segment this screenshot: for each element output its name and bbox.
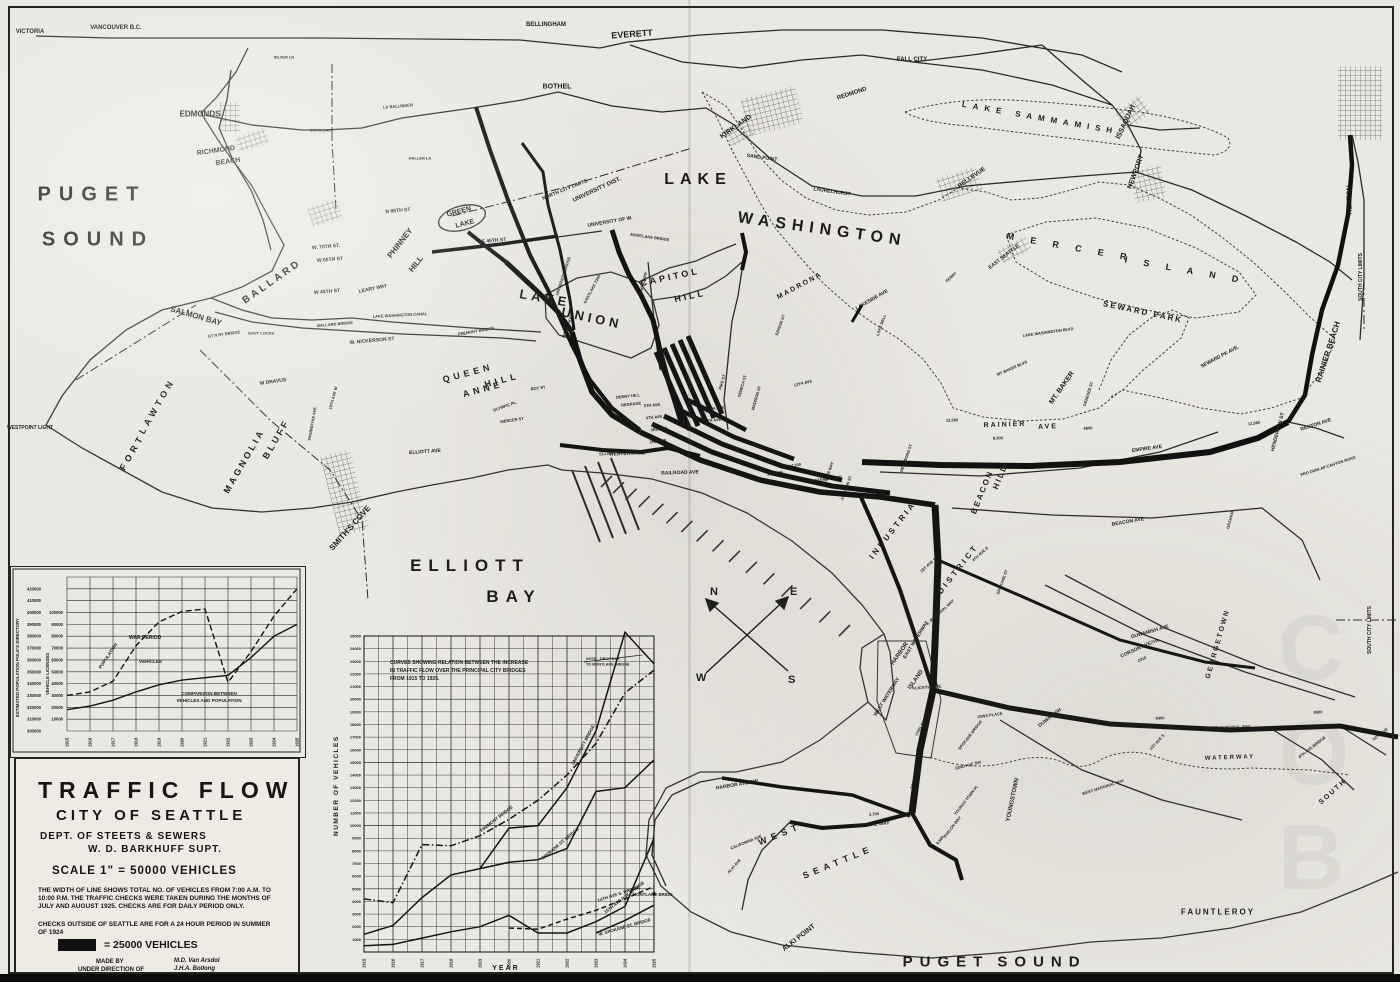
svg-text:1922: 1922 <box>565 958 570 968</box>
svg-text:10000: 10000 <box>350 823 362 828</box>
svg-text:5000: 5000 <box>352 886 362 891</box>
svg-text:1923: 1923 <box>594 958 599 968</box>
svg-text:320000: 320000 <box>27 705 42 710</box>
dept-line: DEPT. OF STEETS & SEWERS <box>40 831 207 842</box>
svg-text:80000: 80000 <box>51 634 63 639</box>
svg-text:1925: 1925 <box>295 737 300 747</box>
compass-rose: N E W S <box>692 585 802 685</box>
legend-value: = 25000 VEHICLES <box>104 939 198 951</box>
svg-text:12000: 12000 <box>350 798 362 803</box>
svg-text:20000: 20000 <box>350 697 362 702</box>
svg-text:1916: 1916 <box>88 737 93 747</box>
made-by-name: M.D. Van Arsdol <box>174 958 220 964</box>
supt-line: W. D. BARKHUFF SUPT. <box>88 844 222 855</box>
svg-text:SPOKANE ST. BRIDGE: SPOKANE ST. BRIDGE <box>540 826 580 860</box>
svg-text:ESTIMATED POPULATION POLK'S D: ESTIMATED POPULATION POLK'S DIRECTORY <box>15 618 20 717</box>
svg-text:2000: 2000 <box>352 924 362 929</box>
svg-text:15000: 15000 <box>350 760 362 765</box>
svg-text:1924: 1924 <box>623 958 628 968</box>
svg-text:1915: 1915 <box>362 958 367 968</box>
scan-edge <box>0 974 1400 982</box>
svg-text:1000: 1000 <box>352 937 362 942</box>
svg-text:1919: 1919 <box>157 737 162 747</box>
compass-e: E <box>790 586 797 598</box>
svg-text:100000: 100000 <box>49 610 64 615</box>
svg-text:30000: 30000 <box>51 693 63 698</box>
smith-cove-piers <box>572 458 639 542</box>
emboss-letter: C <box>1278 596 1344 701</box>
svg-text:6000: 6000 <box>352 874 362 879</box>
compass-s: S <box>788 674 795 685</box>
svg-text:NOTE - DROP DUE: NOTE - DROP DUE <box>586 657 620 661</box>
svg-text:NUMBER OF VEHICLES: NUMBER OF VEHICLES <box>333 735 340 836</box>
svg-text:8000: 8000 <box>352 848 362 853</box>
svg-text:420000: 420000 <box>27 586 42 591</box>
svg-text:7000: 7000 <box>352 861 362 866</box>
map-subtitle: CITY OF SEATTLE <box>56 807 246 824</box>
svg-text:9000: 9000 <box>352 836 362 841</box>
svg-text:310000: 310000 <box>27 717 42 722</box>
svg-text:VEHICLE LICENSES: VEHICLE LICENSES <box>45 653 50 695</box>
svg-text:1917: 1917 <box>420 958 425 968</box>
svg-text:CURVES SHOWING RELATION BETWEE: CURVES SHOWING RELATION BETWEEN THE INCR… <box>390 660 529 666</box>
scale-line: SCALE 1" = 50000 VEHICLES <box>52 865 237 877</box>
svg-text:1915: 1915 <box>65 737 70 747</box>
svg-text:24000: 24000 <box>350 646 362 651</box>
svg-text:WAR PERIOD: WAR PERIOD <box>129 635 162 641</box>
director-name: J.H.A. Bollong <box>174 966 215 972</box>
svg-text:YEAR: YEAR <box>492 965 519 972</box>
svg-text:TO MONTLAKE BRIDGE: TO MONTLAKE BRIDGE <box>586 663 630 667</box>
svg-text:4000: 4000 <box>352 899 362 904</box>
svg-text:1917: 1917 <box>111 737 116 747</box>
outside-note: CHECKS OUTSIDE OF SEATTLE ARE FOR A 24 H… <box>38 921 278 937</box>
svg-text:UNIVERSITY BRIDGE: UNIVERSITY BRIDGE <box>570 724 595 766</box>
svg-text:11000: 11000 <box>350 810 362 815</box>
city-limit-lines <box>76 64 1398 620</box>
compass-n: N <box>710 586 718 598</box>
city-blocks-hatch <box>220 66 1382 536</box>
svg-text:17000: 17000 <box>350 735 362 740</box>
svg-text:410000: 410000 <box>27 598 42 603</box>
svg-text:21000: 21000 <box>350 684 362 689</box>
svg-text:1923: 1923 <box>249 737 254 747</box>
map-title: TRAFFIC FLOW <box>38 777 294 804</box>
svg-text:360000: 360000 <box>27 657 42 662</box>
map-page: N E W S COB VICTORIAVANCOUVER B.C.BELLIN… <box>0 0 1400 982</box>
svg-text:1921: 1921 <box>203 737 208 747</box>
svg-text:1916: 1916 <box>391 958 396 968</box>
svg-text:18000: 18000 <box>350 722 362 727</box>
svg-text:10000: 10000 <box>51 717 63 722</box>
svg-text:22000: 22000 <box>350 671 362 676</box>
method-note: THE WIDTH OF LINE SHOWS TOTAL NO. OF VEH… <box>38 887 278 911</box>
svg-text:400000: 400000 <box>27 610 42 615</box>
svg-text:370000: 370000 <box>27 646 42 651</box>
svg-text:1925: 1925 <box>652 958 657 968</box>
svg-text:16000: 16000 <box>350 747 362 752</box>
svg-text:1921: 1921 <box>536 958 541 968</box>
svg-text:40000: 40000 <box>51 681 63 686</box>
svg-text:25000: 25000 <box>350 634 362 639</box>
svg-text:IN TRAFFIC FLOW OVER THE PRINC: IN TRAFFIC FLOW OVER THE PRINCIPAL CITY … <box>390 668 526 674</box>
svg-text:POPULATION: POPULATION <box>98 642 119 670</box>
svg-text:3000: 3000 <box>352 912 362 917</box>
legend-line-sample <box>58 939 96 951</box>
svg-text:60000: 60000 <box>51 657 63 662</box>
svg-text:19000: 19000 <box>350 709 362 714</box>
svg-text:13000: 13000 <box>350 785 362 790</box>
svg-text:1919: 1919 <box>478 958 483 968</box>
svg-text:FROM 1915 TO 1925.: FROM 1915 TO 1925. <box>390 676 440 682</box>
svg-text:VEHICLES: VEHICLES <box>139 659 162 664</box>
svg-text:390000: 390000 <box>27 622 42 627</box>
svg-text:50000: 50000 <box>51 669 63 674</box>
svg-text:20000: 20000 <box>51 705 63 710</box>
emboss-letter: O <box>1278 701 1350 806</box>
compass-w: W <box>696 672 707 684</box>
svg-text:380000: 380000 <box>27 634 42 639</box>
population-vehicles-chart: 3000003100003200003300003400003500003600… <box>10 566 306 758</box>
svg-text:23000: 23000 <box>350 659 362 664</box>
svg-text:MONTLAKE BRIDGE: MONTLAKE BRIDGE <box>632 892 673 897</box>
svg-text:1918: 1918 <box>449 958 454 968</box>
svg-text:VEHICLES AND POPULATION: VEHICLES AND POPULATION <box>176 698 242 703</box>
emboss-letter: B <box>1278 806 1344 911</box>
svg-text:1924: 1924 <box>272 737 277 747</box>
svg-text:1922: 1922 <box>226 737 231 747</box>
made-by-label: MADE BY <box>96 959 124 965</box>
svg-text:300000: 300000 <box>27 729 42 734</box>
svg-text:350000: 350000 <box>27 669 42 674</box>
svg-text:14000: 14000 <box>350 773 362 778</box>
bridges-chart: 1000200030004000500060007000800090001000… <box>328 620 673 976</box>
svg-text:70000: 70000 <box>51 646 63 651</box>
svg-text:90000: 90000 <box>51 622 63 627</box>
fold-crease <box>688 0 691 976</box>
direction-label: UNDER DIRECTION OF <box>78 967 144 973</box>
svg-text:1918: 1918 <box>134 737 139 747</box>
svg-text:340000: 340000 <box>27 681 42 686</box>
title-block: TRAFFIC FLOW CITY OF SEATTLE DEPT. OF ST… <box>14 757 300 979</box>
svg-text:1920: 1920 <box>180 737 185 747</box>
svg-text:COMPARISON BETWEEN: COMPARISON BETWEEN <box>181 691 237 696</box>
svg-text:330000: 330000 <box>27 693 42 698</box>
